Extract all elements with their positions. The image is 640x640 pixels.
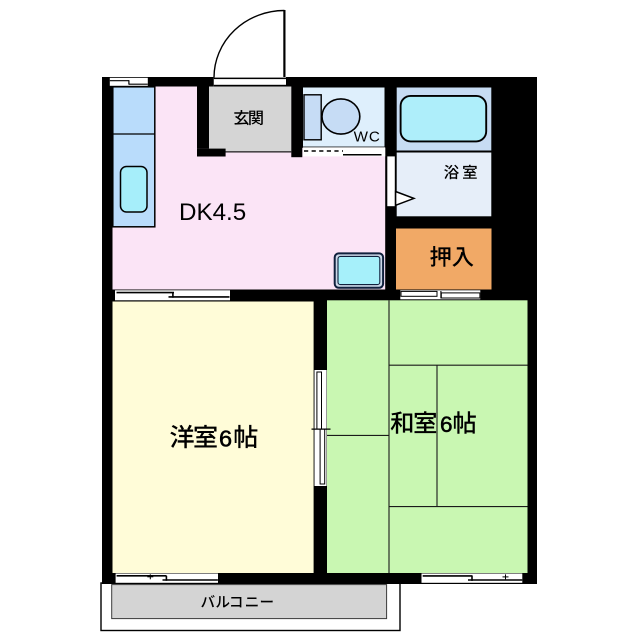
svg-text:6: 6 bbox=[440, 412, 453, 437]
svg-text:6: 6 bbox=[219, 425, 232, 451]
svg-text:WC: WC bbox=[354, 128, 381, 145]
svg-text:DK4.5: DK4.5 bbox=[179, 199, 246, 226]
